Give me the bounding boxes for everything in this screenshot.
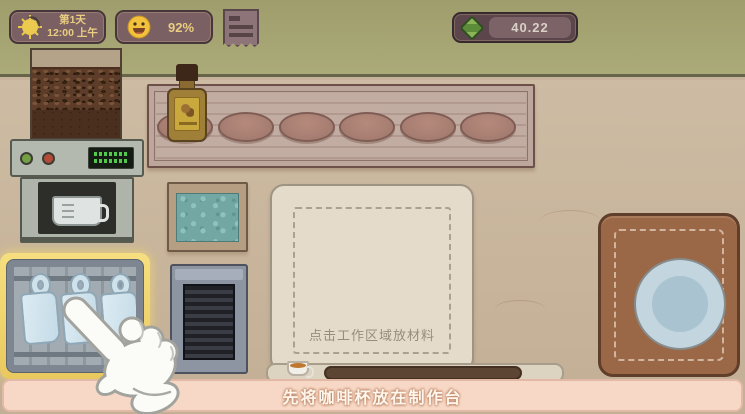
counter-scratch: [495, 300, 545, 318]
coffee-grounds: [32, 110, 120, 140]
time-label: 12:00 上午: [47, 27, 98, 40]
sun-moon-icon: [17, 14, 43, 40]
receipt-line: [229, 33, 253, 37]
work-area[interactable]: 点击工作区域放材料: [270, 184, 474, 372]
day-time-badge: 第1天 12:00 上午: [9, 10, 106, 44]
day-label: 第1天: [47, 14, 98, 27]
game-screen: 第1天 12:00 上午 92% 40.22: [0, 0, 745, 414]
money-badge[interactable]: 40.22: [452, 12, 578, 43]
bottle-label: [174, 97, 200, 131]
shelf-plate[interactable]: [339, 112, 395, 142]
shelf-plate[interactable]: [460, 112, 516, 142]
ice-bin[interactable]: [167, 182, 248, 252]
serving-mat[interactable]: [598, 213, 740, 377]
syrup-bottle[interactable]: [167, 64, 207, 142]
work-area-hint: 点击工作区域放材料: [272, 325, 472, 344]
brew-station[interactable]: [20, 177, 134, 243]
mood-badge: 92%: [115, 10, 213, 44]
brew-alcove: [38, 182, 116, 234]
shelf-plate[interactable]: [400, 112, 456, 142]
serving-plate: [634, 258, 726, 350]
receipt-line: [229, 25, 253, 29]
tutorial-message: 先将咖啡杯放在制作台: [282, 384, 462, 408]
vent-top-band: [175, 269, 243, 280]
bottle-body: [167, 88, 207, 142]
machine-display: [88, 147, 134, 169]
machine-red-button[interactable]: [42, 152, 55, 165]
small-coffee-cup-icon: [287, 361, 309, 376]
machine-green-button[interactable]: [20, 152, 33, 165]
cash-icon: [459, 15, 485, 41]
coffee-beans: [32, 67, 120, 111]
shelf-plate[interactable]: [279, 112, 335, 142]
ledge-tray: [324, 366, 522, 380]
shelf-plate[interactable]: [218, 112, 274, 142]
counter-scratch: [540, 210, 600, 232]
smiley-face-icon: [127, 15, 151, 39]
bean-hopper[interactable]: [30, 48, 122, 140]
mood-value: 92%: [161, 20, 201, 35]
receipt-icon[interactable]: [223, 9, 259, 47]
measuring-cup: [52, 196, 102, 226]
receipt-line: [229, 16, 240, 21]
ice-cubes: [176, 193, 239, 242]
tutorial-hand-cursor: [52, 292, 197, 414]
machine-control-panel: [10, 139, 144, 177]
money-value: 40.22: [489, 17, 571, 38]
bottle-cap: [176, 64, 198, 81]
